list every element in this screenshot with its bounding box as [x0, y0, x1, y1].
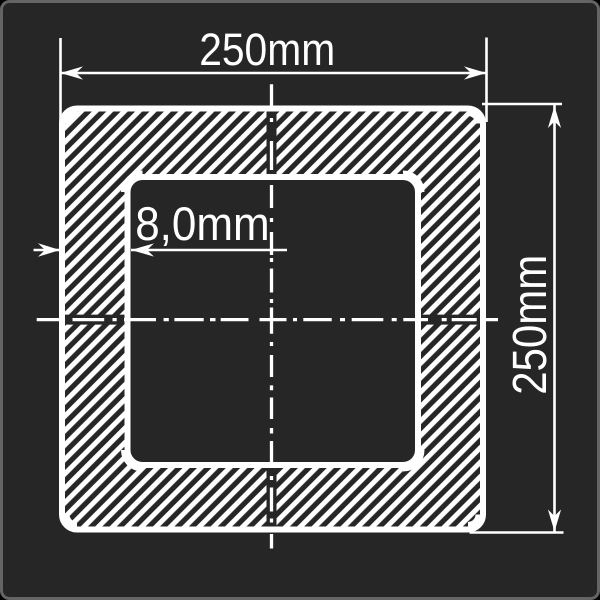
svg-text:250mm: 250mm — [504, 255, 557, 395]
svg-text:8,0mm: 8,0mm — [135, 198, 270, 251]
svg-text:250mm: 250mm — [199, 24, 335, 75]
